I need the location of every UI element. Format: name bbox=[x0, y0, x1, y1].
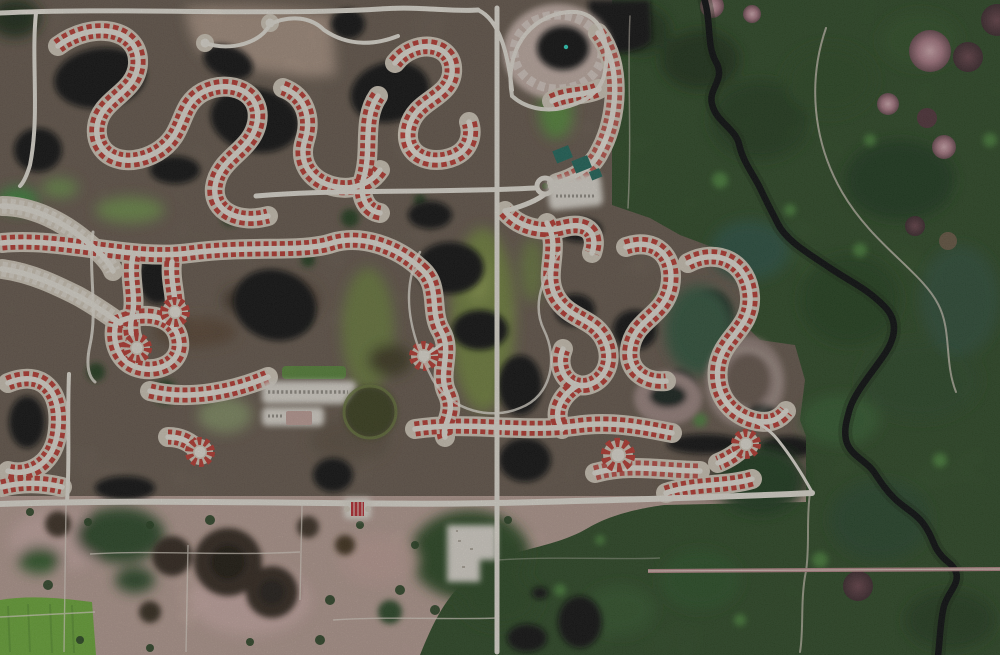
aerial-photo-canvas bbox=[0, 0, 1000, 655]
photo-grain bbox=[0, 0, 1000, 655]
aerial-photograph bbox=[0, 0, 1000, 655]
